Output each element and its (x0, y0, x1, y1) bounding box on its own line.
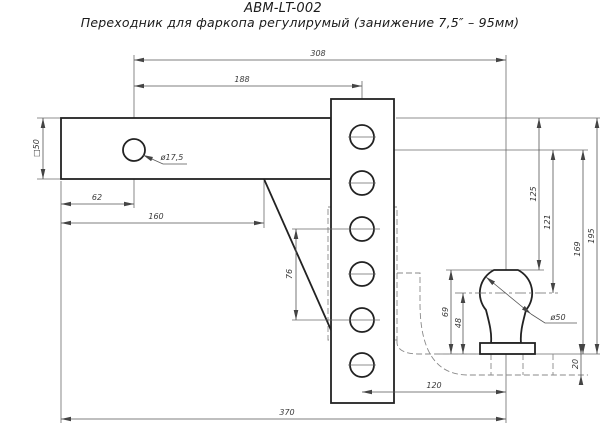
gusset (264, 179, 331, 330)
dim-69: 69 (441, 307, 450, 317)
drawing-sheet: ABM-LT-002 Переходник для фаркопа регули… (0, 0, 600, 424)
dim-48: 48 (454, 318, 463, 328)
dim-sq50: □50 (32, 139, 41, 157)
dim-160: 160 (148, 212, 163, 221)
dim-370: 370 (279, 408, 294, 417)
ball-base (480, 343, 535, 354)
shank-bar (61, 118, 331, 179)
extension-lines (37, 55, 600, 423)
shank-hole (123, 139, 145, 161)
dim-308: 308 (310, 49, 325, 58)
dim-76: 76 (285, 269, 294, 279)
dim-169: 169 (573, 241, 582, 256)
dim-188: 188 (234, 75, 249, 84)
technical-drawing: 308 188 62 160 120 370 ø17,5 ø50 □50 76 … (0, 0, 600, 424)
adjustment-plate (331, 99, 394, 403)
dim-20: 20 (571, 359, 580, 369)
dim-121: 121 (543, 214, 552, 229)
dimension-lines (43, 60, 597, 419)
dimension-labels: 308 188 62 160 120 370 ø17,5 ø50 □50 76 … (32, 49, 596, 417)
dim-ball-dia: ø50 (549, 313, 565, 322)
hitch-ball (480, 270, 535, 354)
dim-ball-hole-dia: ø17,5 (160, 153, 184, 162)
dim-195: 195 (587, 228, 596, 243)
dim-120: 120 (426, 381, 441, 390)
dim-125: 125 (529, 186, 538, 201)
dim-62: 62 (92, 193, 102, 202)
